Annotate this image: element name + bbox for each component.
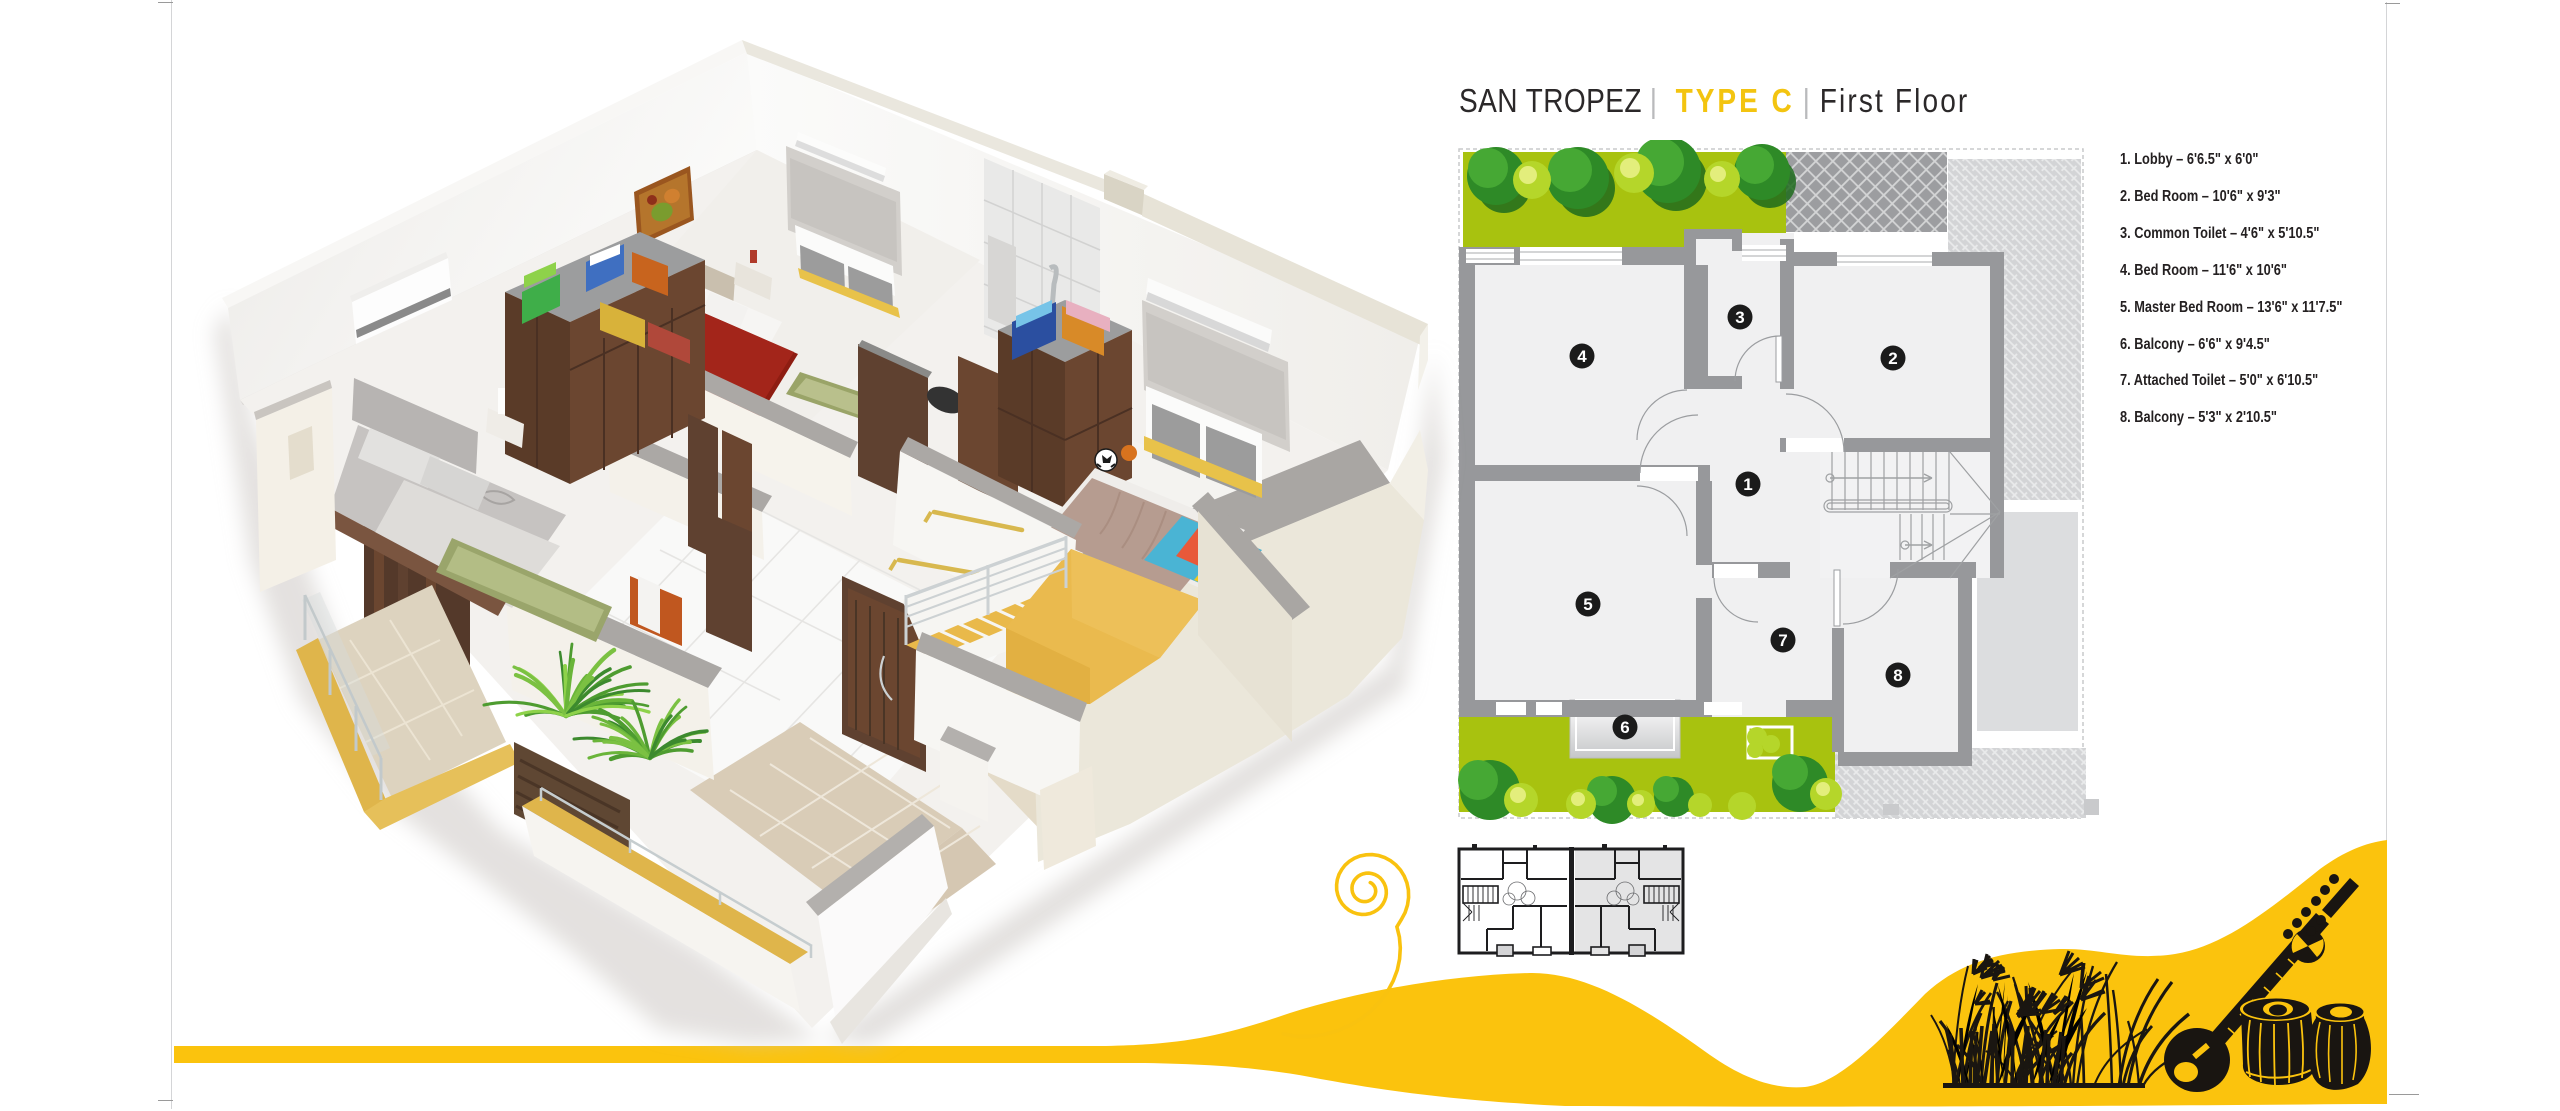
svg-text:4: 4 xyxy=(1577,347,1587,366)
svg-text:5: 5 xyxy=(1583,595,1592,614)
svg-text:2: 2 xyxy=(1888,349,1897,368)
svg-text:3: 3 xyxy=(1735,308,1744,327)
svg-text:6: 6 xyxy=(1620,718,1629,737)
svg-text:8: 8 xyxy=(1893,666,1902,685)
svg-text:7: 7 xyxy=(1778,631,1787,650)
svg-text:1: 1 xyxy=(1743,475,1752,494)
